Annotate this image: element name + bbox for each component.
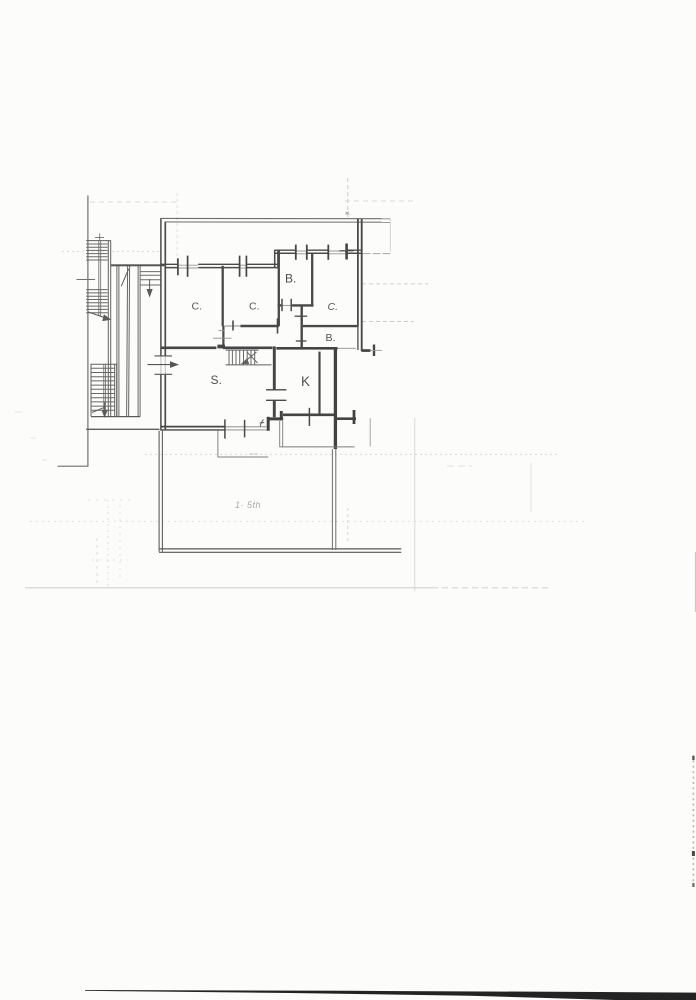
svg-text:C.: C. — [328, 301, 339, 313]
svg-text:K: K — [301, 374, 310, 389]
svg-text:B.: B. — [285, 272, 296, 286]
svg-text:S.: S. — [211, 373, 222, 387]
svg-text:B.: B. — [326, 332, 336, 344]
svg-text:C.: C. — [192, 301, 203, 313]
svg-text:C.: C. — [249, 301, 260, 313]
svg-text:1· 5ṫh: 1· 5ṫh — [235, 500, 261, 510]
